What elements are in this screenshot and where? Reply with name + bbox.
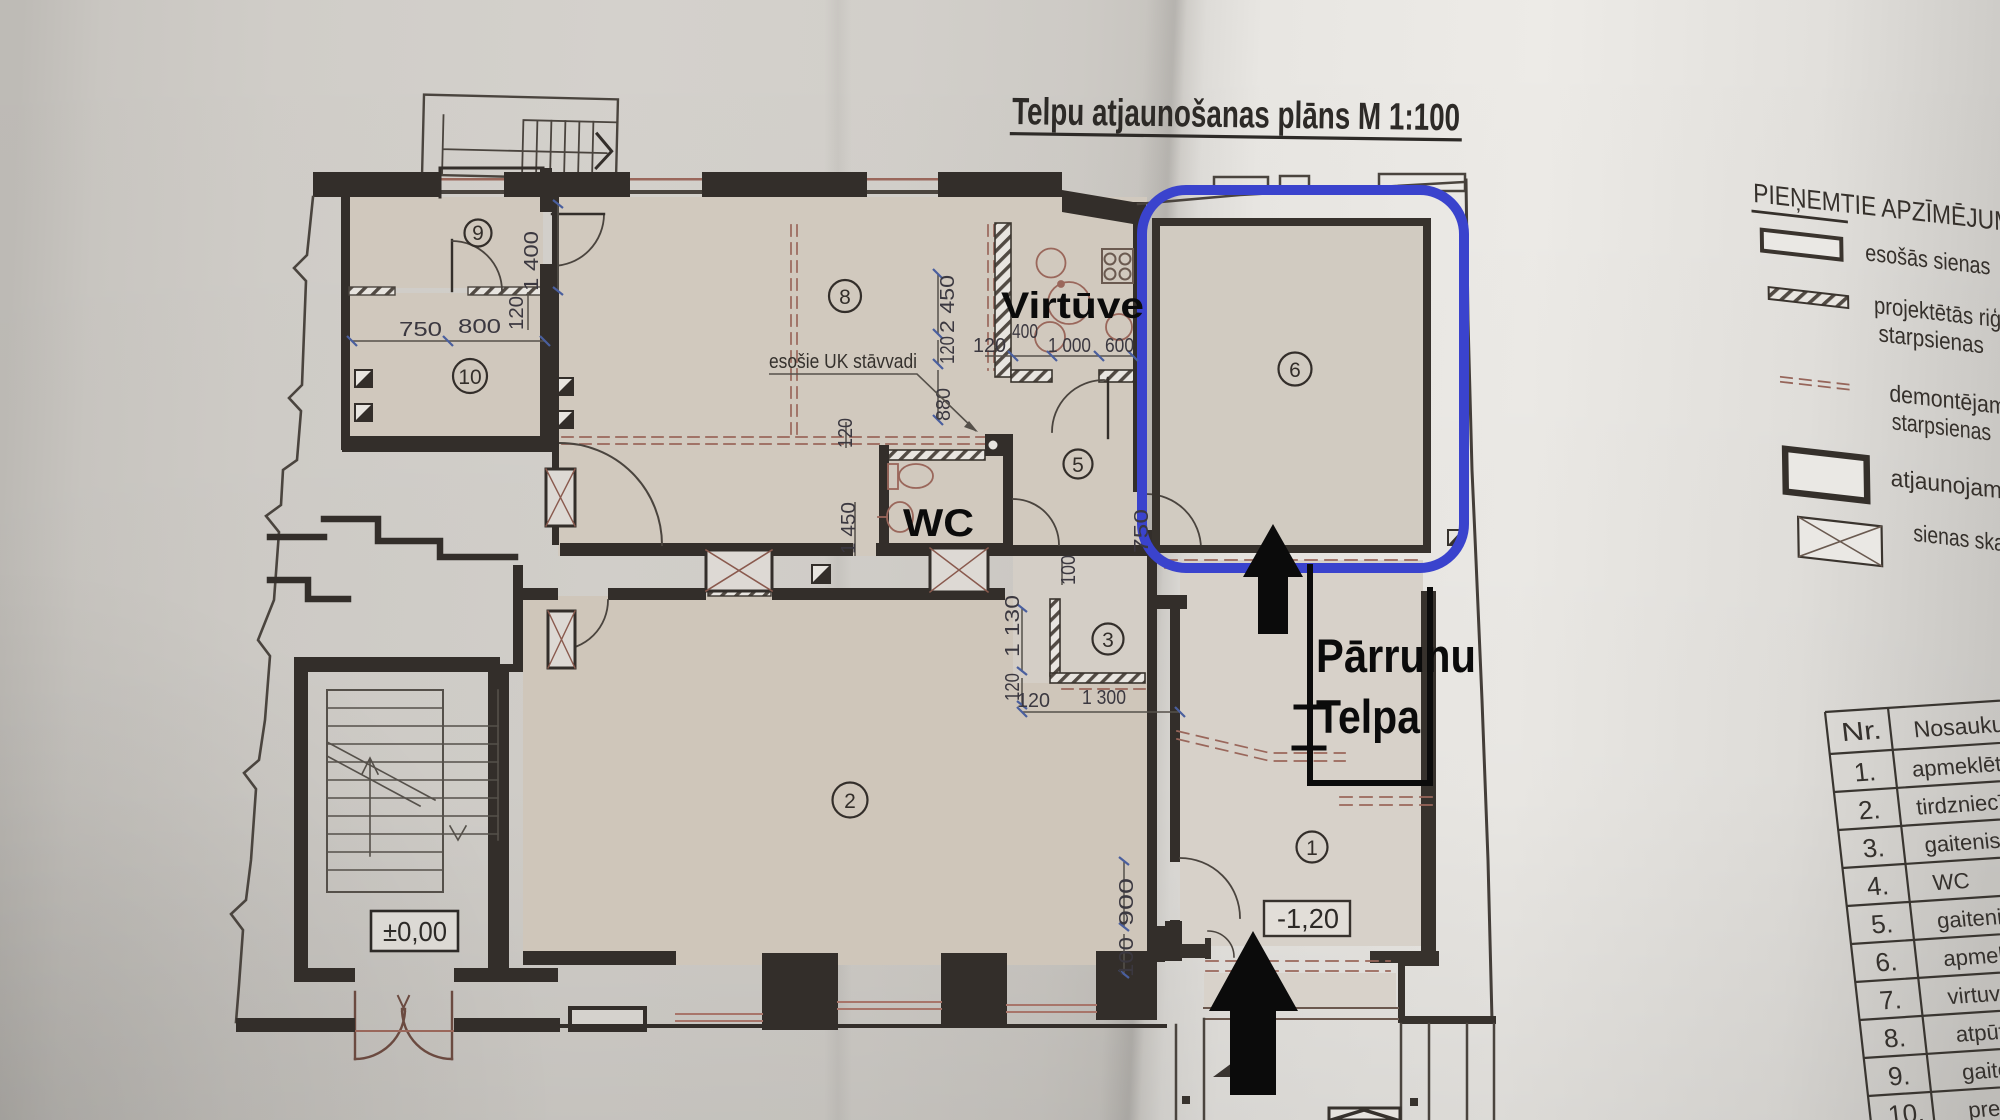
svg-text:Pārrunu: Pārrunu [1316,629,1476,682]
svg-text:400: 400 [1012,321,1038,343]
svg-text:900: 900 [1116,878,1138,926]
svg-text:3.: 3. [1861,832,1886,863]
svg-text:1 300: 1 300 [1082,687,1126,709]
svg-text:1 400: 1 400 [521,231,543,291]
svg-text:1.: 1. [1852,756,1877,787]
svg-text:1 000: 1 000 [1048,335,1091,357]
svg-text:-1,20: -1,20 [1277,903,1339,934]
svg-text:WC: WC [903,502,974,545]
svg-text:9.: 9. [1886,1060,1911,1091]
svg-text:gaitenis: gaitenis [1961,1055,2000,1085]
svg-text:8.: 8. [1882,1022,1907,1053]
svg-text:6: 6 [1289,359,1301,382]
svg-text:Telpa: Telpa [1316,690,1421,743]
svg-text:±0,00: ±0,00 [383,916,447,947]
svg-text:120: 120 [835,418,857,448]
svg-text:virtuve: virtuve [1946,980,2000,1009]
svg-text:4.: 4. [1865,870,1890,901]
svg-text:9: 9 [472,222,484,245]
svg-text:120: 120 [973,335,1006,357]
svg-text:1 450: 1 450 [838,502,860,554]
svg-text:preču: preču [1967,1094,2000,1120]
svg-text:120: 120 [506,296,528,330]
svg-text:gaitenis: gaitenis [1936,903,2000,933]
svg-text:100: 100 [1058,555,1080,585]
svg-text:800: 800 [458,316,501,338]
svg-text:2: 2 [844,790,856,813]
svg-text:1 130: 1 130 [1002,595,1024,657]
svg-text:1: 1 [1306,837,1318,860]
svg-text:Virtūve: Virtūve [1001,285,1144,326]
svg-text:10: 10 [458,366,481,389]
svg-text:10.: 10. [1887,1098,1926,1120]
svg-text:2.: 2. [1857,794,1882,825]
svg-text:5.: 5. [1869,908,1894,939]
svg-text:120: 120 [1017,690,1050,712]
svg-text:120: 120 [937,336,959,364]
svg-text:WC: WC [1931,868,1970,895]
svg-text:8: 8 [839,286,851,309]
svg-text:750: 750 [399,319,442,341]
svg-text:5: 5 [1072,454,1084,477]
svg-text:esošie UK stāvvadi: esošie UK stāvvadi [769,351,917,373]
svg-text:Nr.: Nr. [1840,715,1883,747]
svg-text:gaitenis: gaitenis [1923,828,2000,858]
svg-text:600: 600 [1105,335,1134,357]
svg-text:100: 100 [1116,937,1138,977]
svg-text:3: 3 [1102,629,1114,652]
svg-text:Telpu atjaunošanas plāns M 1:1: Telpu atjaunošanas plāns M 1:100 [1012,91,1461,139]
svg-text:atpūtas: atpūtas [1954,1017,2000,1047]
svg-text:750: 750 [1131,509,1153,553]
svg-text:7.: 7. [1878,984,1903,1015]
svg-text:6.: 6. [1874,946,1899,977]
svg-text:2 450: 2 450 [937,275,959,333]
